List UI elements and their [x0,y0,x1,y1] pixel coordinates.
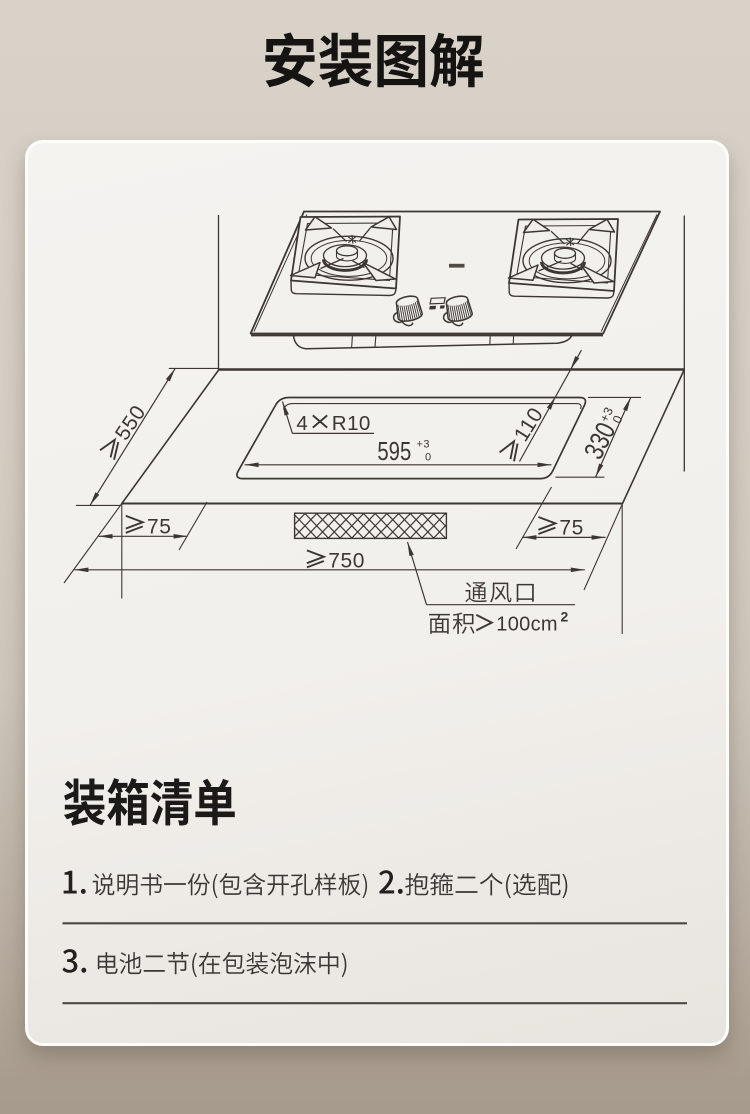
svg-text:550: 550 [111,401,151,444]
svg-text:2: 2 [561,609,569,625]
svg-text:330: 330 [579,418,622,464]
svg-text:0: 0 [425,452,431,464]
svg-text:750: 750 [328,549,365,572]
svg-text:R10: R10 [332,412,371,435]
svg-text:75: 75 [559,517,584,540]
svg-text:100cm: 100cm [496,613,558,635]
svg-text:4: 4 [296,412,307,435]
svg-text:110: 110 [510,404,548,446]
svg-text:+3: +3 [417,439,431,451]
svg-text:75: 75 [147,515,172,538]
svg-text:595: 595 [377,437,411,466]
